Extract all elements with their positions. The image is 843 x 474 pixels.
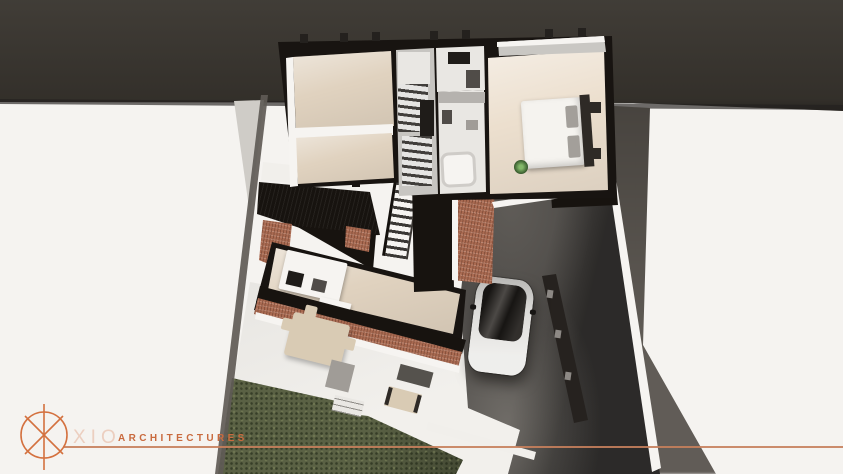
parapet-post [545, 29, 553, 38]
stair-void [420, 100, 434, 136]
outdoor-chair [281, 317, 296, 332]
bedroom-1-floor [293, 51, 395, 131]
parapet-post [430, 31, 438, 40]
pillow [567, 135, 581, 158]
fence-post [554, 330, 561, 339]
potted-plant [514, 160, 528, 174]
double-bed [521, 97, 586, 169]
parapet-post [372, 32, 380, 41]
car-mirror [530, 309, 537, 315]
nightstand [590, 148, 601, 159]
pillow [565, 105, 579, 128]
stair-flight [402, 136, 432, 186]
wardrobe [466, 70, 480, 88]
parked-car [466, 275, 535, 377]
parapet-post [300, 34, 308, 43]
car-roof-glass [477, 282, 527, 343]
parapet-post [578, 28, 586, 37]
bathroom-halfwall [438, 92, 485, 103]
stair-landing [398, 52, 430, 84]
xio-logo-icon [8, 400, 76, 472]
nightstand [590, 102, 601, 113]
kitchen-appliance [285, 270, 304, 287]
fence-post [546, 290, 553, 299]
brand-name: XIO [73, 427, 121, 449]
brand-tagline: ARCHITECTURES [118, 433, 248, 444]
outdoor-chair [303, 304, 318, 319]
parapet-post [340, 33, 348, 42]
parapet-post [462, 30, 470, 39]
wardrobe [448, 52, 470, 64]
brand-horizontal-rule [64, 446, 843, 448]
kitchen-appliance [311, 278, 327, 293]
bedroom-2-floor [295, 133, 395, 186]
architectural-aerial-render: XIO ARCHITECTURES [0, 0, 843, 474]
fence-post [564, 372, 571, 381]
bathroom-fixture [466, 120, 478, 130]
bathroom-fixture [442, 110, 452, 124]
bathtub [440, 151, 477, 188]
car-mirror [470, 304, 477, 310]
